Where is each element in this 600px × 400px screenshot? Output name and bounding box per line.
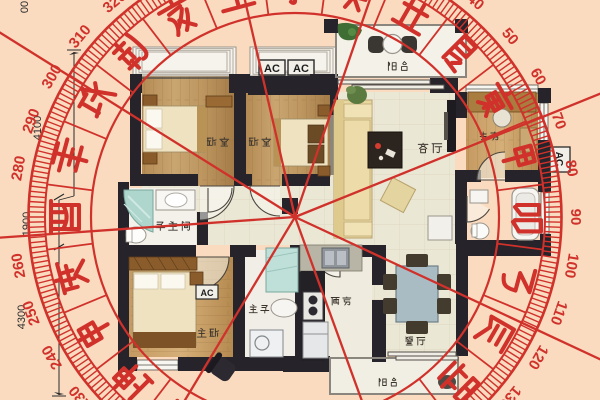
svg-text:AC: AC (264, 63, 280, 75)
svg-text:00: 00 (19, 1, 31, 13)
svg-text:80: 80 (561, 159, 581, 178)
svg-text:AC: AC (293, 63, 309, 75)
svg-text:AC: AC (201, 288, 214, 298)
svg-text:90: 90 (567, 209, 584, 226)
